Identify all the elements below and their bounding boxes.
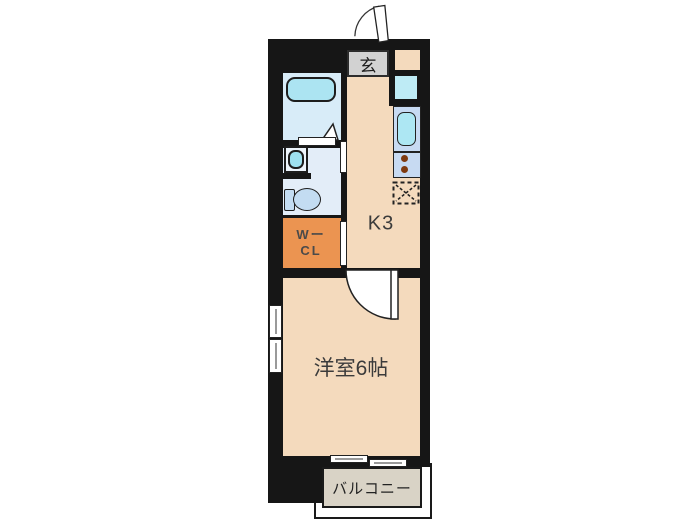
washroom-door	[340, 141, 347, 173]
closet-door	[340, 221, 347, 266]
washing-machine-space-icon	[392, 73, 420, 102]
room-door-swing-icon	[344, 267, 400, 322]
window-glass	[275, 343, 277, 369]
floorplan-canvas: 玄 Wー CL K3 洋室6帖 バルコニー	[0, 0, 700, 525]
entrance-door-swing-icon	[344, 2, 400, 50]
balcony-label: バルコニー	[332, 478, 412, 499]
window-left-lower	[269, 339, 282, 373]
window-glass	[275, 309, 277, 334]
entrance-label: 玄	[360, 52, 377, 77]
wall-segment	[283, 173, 311, 179]
wcl-label-line2: CL	[296, 243, 325, 259]
kitchen-sink-icon	[397, 112, 416, 146]
bath-washroom-door	[298, 137, 336, 146]
window-glass	[374, 462, 403, 464]
stove-burner-icon	[401, 155, 408, 162]
western-room-label: 洋室6帖	[314, 352, 389, 382]
bathtub-icon	[286, 77, 336, 102]
wash-basin-icon	[288, 150, 304, 169]
counter-divider	[393, 151, 421, 153]
balcony-window-right-panel	[369, 459, 407, 467]
wcl-label-line1: Wー	[296, 227, 325, 243]
refrigerator-space-icon	[392, 181, 420, 205]
kitchen-label: K3	[368, 213, 394, 236]
window-glass	[335, 458, 364, 460]
window-left-upper	[269, 305, 282, 338]
stove-burner-icon	[401, 166, 408, 173]
walk-in-closet-label: Wー CL	[296, 227, 325, 259]
balcony-window-left-panel	[330, 455, 368, 463]
toilet-bowl-icon	[293, 188, 321, 211]
